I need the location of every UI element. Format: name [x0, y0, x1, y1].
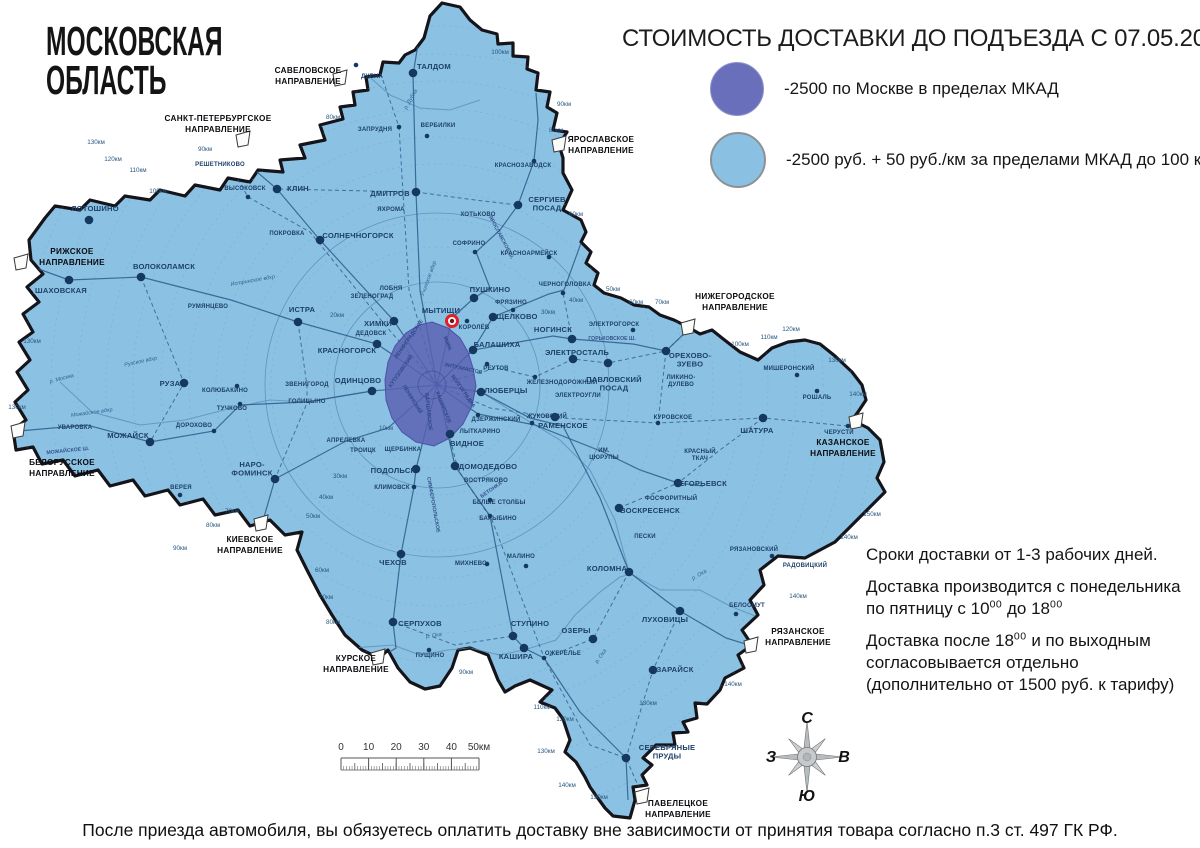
- city-label: ТКАЧ: [692, 456, 708, 462]
- city-dot: [561, 291, 566, 296]
- city-label: РАДОВИЦКИЙ: [783, 561, 827, 569]
- km-marker: 130км: [23, 338, 41, 345]
- sup-hours: 00: [1050, 599, 1063, 611]
- km-marker: 70км: [655, 299, 669, 306]
- scale-bar-label: 40: [446, 742, 458, 753]
- city-label: МОЖАЙСК: [107, 431, 149, 440]
- direction-label: НАПРАВЛЕНИЕ: [765, 638, 831, 647]
- city-label: ОДИНЦОВО: [335, 376, 381, 385]
- city-label: РУЗА: [160, 379, 181, 388]
- city-label: ПОСАД: [533, 204, 562, 213]
- city-dot: [446, 430, 455, 439]
- direction-label: РИЖСКОЕ: [50, 247, 94, 256]
- city-label: БЕЛЫЕ СТОЛБЫ: [472, 500, 525, 506]
- km-marker: 140км: [840, 534, 858, 541]
- direction-flag-icon: [14, 254, 28, 270]
- city-label: ТРОИЦК: [350, 448, 376, 454]
- city-label: ИСТРА: [289, 305, 316, 314]
- city-dot: [530, 421, 535, 426]
- legend-label-oblast: -2500 руб. + 50 руб./км за пределами МКА…: [786, 150, 1200, 170]
- city-label: ХИМКИ: [364, 319, 392, 328]
- city-dot: [631, 328, 636, 333]
- km-marker: 70км: [319, 594, 333, 601]
- city-label: ПРУДЫ: [653, 752, 682, 761]
- city-label: ОЖЕРЕЛЬЕ: [545, 651, 581, 657]
- direction-label: НАПРАВЛЕНИЕ: [275, 77, 341, 86]
- city-label: ДМИТРОВ: [370, 189, 410, 198]
- city-label: ЗЕЛЕНОГРАД: [351, 294, 394, 300]
- legend-label-mkad: -2500 по Москве в пределах МКАД: [784, 79, 1059, 99]
- delivery-terms: Сроки доставки от 1-3 рабочих дней.: [866, 544, 1200, 566]
- km-marker: 80км: [326, 114, 340, 121]
- direction-label: КАЗАНСКОЕ: [816, 438, 870, 447]
- city-label: ДОРОХОВО: [176, 423, 212, 429]
- city-label: ЛЮБЕРЦЫ: [484, 386, 527, 395]
- km-marker: 130км: [537, 748, 555, 755]
- city-label: ОЗЕРЫ: [561, 626, 590, 635]
- city-label: КЛИМОВСК: [374, 485, 410, 491]
- direction-label: САНКТ-ПЕТЕРБУРГСКОЕ: [165, 114, 272, 123]
- scale-bar-label: 10: [363, 742, 375, 753]
- direction-label: НАПРАВЛЕНИЕ: [810, 449, 876, 458]
- city-label: ДУБНА: [361, 74, 384, 80]
- city-label: ЛОТОШИНО: [71, 204, 119, 213]
- city-label: НОГИНСК: [534, 325, 572, 334]
- city-dot: [178, 493, 183, 498]
- direction-label: НАПРАВЛЕНИЕ: [29, 469, 95, 478]
- city-label: КРАСНОАРМЕЙСК: [501, 249, 558, 257]
- city-dot: [389, 618, 398, 627]
- city-label: ПОСАД: [600, 384, 629, 393]
- compass-east-label: В: [838, 749, 850, 766]
- km-marker: 140км: [849, 391, 867, 398]
- city-label: КОРОЛЁВ: [459, 324, 490, 331]
- delivery-after-hours: Доставка после 1800 и по выходным соглас…: [866, 630, 1200, 696]
- compass-south-label: Ю: [799, 788, 816, 805]
- direction-label: НАПРАВЛЕНИЕ: [323, 665, 389, 674]
- city-dot: [511, 308, 516, 313]
- city-label: КАШИРА: [499, 652, 534, 661]
- km-marker: 80км: [206, 522, 220, 529]
- city-label: ЧЕРУСТИ: [824, 430, 853, 436]
- city-label: ДЕДОВСК: [356, 331, 387, 337]
- city-label: ВЫСОКОВСК: [224, 186, 265, 192]
- city-label: ЭЛЕКТРОСТАЛЬ: [545, 348, 609, 357]
- disclaimer-text: После приезда автомобиля, вы обязуетесь …: [0, 820, 1200, 841]
- city-label: ЗУЕВО: [677, 360, 703, 369]
- mkad-zone-circle-icon: [710, 62, 764, 116]
- city-label: ДОМОДЕДОВО: [459, 462, 517, 471]
- city-label: ФОСФОРИТНЫЙ: [645, 494, 698, 502]
- km-marker: 30км: [333, 473, 347, 480]
- km-marker: 50км: [606, 286, 620, 293]
- city-dot: [509, 632, 518, 641]
- city-label: СЕРПУХОВ: [398, 619, 442, 628]
- city-dot: [273, 185, 282, 194]
- city-dot: [846, 424, 851, 429]
- km-marker: 40км: [569, 297, 583, 304]
- moscow-oblast-map: ГОРЬКОВСКОЕ Ш.МОЖАЙСКОЕ Ш.БЕТОНКАЯРОСЛАВ…: [0, 0, 1200, 848]
- km-marker: 150км: [863, 511, 881, 518]
- city-label: ВОСТРЯКОВО: [464, 478, 508, 484]
- km-marker: 120км: [556, 716, 574, 723]
- city-dot: [354, 63, 359, 68]
- road-name-label: ГОРЬКОВСКОЕ Ш.: [588, 336, 636, 342]
- city-label: БЕЛООМУТ: [729, 603, 765, 609]
- city-label: БАРЫБИНО: [479, 516, 517, 522]
- sup-hours: 00: [1014, 631, 1027, 643]
- city-dot: [568, 335, 577, 344]
- location-marker-center: [450, 319, 454, 323]
- city-label: БАЛАШИХА: [474, 340, 521, 349]
- km-marker: 10км: [379, 425, 393, 432]
- compass-rose-icon: СВЮЗ: [766, 710, 850, 805]
- km-marker: 60км: [315, 567, 329, 574]
- city-label: ВОСКРЕСЕНСК: [620, 506, 680, 515]
- km-marker: 110км: [760, 334, 777, 341]
- city-label: РУМЯНЦЕВО: [188, 304, 228, 310]
- city-dot: [397, 125, 402, 130]
- legend-row-oblast: -2500 руб. + 50 руб./км за пределами МКА…: [710, 132, 1200, 188]
- city-label: ЛУХОВИЦЫ: [642, 615, 688, 624]
- city-label: КРАСНОГОРСК: [318, 346, 377, 355]
- city-label: ЛИКИНО-: [667, 375, 696, 381]
- city-label: СОЛНЕЧНОГОРСК: [322, 231, 393, 240]
- city-dot: [368, 387, 377, 396]
- direction-label: НАПРАВЛЕНИЕ: [568, 146, 634, 155]
- km-marker: 100км: [149, 188, 167, 195]
- city-label: РЕУТОВ: [483, 366, 509, 372]
- scale-bar-label: 0: [338, 742, 344, 753]
- city-dot: [473, 250, 478, 255]
- direction-label: КИЕВСКОЕ: [226, 535, 273, 544]
- direction-label: РЯЗАНСКОЕ: [771, 627, 825, 636]
- city-label: МИХНЕВО: [455, 561, 487, 567]
- city-dot: [212, 429, 217, 434]
- city-label: РЕШЕТНИКОВО: [195, 162, 245, 168]
- direction-label: САВЕЛОВСКОЕ: [275, 66, 342, 75]
- km-marker: 150км: [590, 794, 608, 801]
- city-label: ТУЧКОВО: [217, 406, 247, 412]
- city-dot: [520, 644, 529, 653]
- km-marker: 80км: [549, 127, 563, 134]
- scale-bar: 01020304050км: [338, 742, 490, 770]
- direction-label: НАПРАВЛЕНИЕ: [702, 303, 768, 312]
- city-label: ДЗЕРЖИНСКИЙ: [472, 415, 521, 423]
- city-label: ЯХРОМА: [377, 207, 405, 213]
- city-dot: [622, 754, 631, 763]
- city-dot: [604, 359, 613, 368]
- km-marker: 130км: [87, 139, 105, 146]
- city-label: ШАХОВСКАЯ: [35, 286, 87, 295]
- km-marker: 130км: [8, 404, 26, 411]
- city-label: ПУЩИНО: [416, 653, 445, 659]
- city-dot: [514, 201, 523, 210]
- km-marker: 140км: [558, 782, 576, 789]
- km-marker: 90км: [173, 545, 187, 552]
- city-label: ШАТУРА: [740, 426, 773, 435]
- direction-label: ПАВЕЛЕЦКОЕ: [648, 799, 708, 808]
- city-label: КОЛОМНА: [587, 564, 628, 573]
- city-label: ПОКРОВКА: [269, 231, 305, 237]
- map-title-line2: ОБЛАСТЬ: [46, 61, 223, 100]
- city-dot: [412, 188, 421, 197]
- km-marker: 90км: [459, 669, 473, 676]
- direction-label: НАПРАВЛЕНИЕ: [185, 125, 251, 134]
- oblast-zone-circle-icon: [710, 132, 766, 188]
- city-dot: [425, 134, 430, 139]
- km-marker: 130км: [828, 357, 846, 364]
- city-label: КЛИН: [287, 184, 309, 193]
- city-dot: [734, 612, 739, 617]
- city-dot: [427, 648, 432, 653]
- city-label: ЦЮРУПЫ: [589, 455, 619, 461]
- city-dot: [397, 550, 406, 559]
- city-label: ЭЛЕКТРОГОРСК: [589, 322, 640, 328]
- km-marker: 40км: [319, 494, 333, 501]
- pricing-title: СТОИМОСТЬ ДОСТАВКИ ДО ПОДЪЕЗДА С 07.05.2…: [622, 25, 1200, 53]
- city-label: ГОЛИЦЫНО: [288, 399, 325, 405]
- city-label: МИШЕРОНСКИЙ: [763, 364, 814, 372]
- city-dot: [815, 389, 820, 394]
- city-label: ЖЕЛЕЗНОДОРОЖНЫЙ: [526, 378, 598, 386]
- legend-row-mkad: -2500 по Москве в пределах МКАД: [710, 62, 1059, 116]
- city-label: МАЛИНО: [507, 554, 535, 560]
- direction-label: НАПРАВЛЕНИЕ: [645, 810, 711, 819]
- city-label: ВОЛОКОЛАМСК: [133, 262, 195, 271]
- compass-north-label: С: [801, 710, 813, 727]
- city-dot: [246, 195, 251, 200]
- city-label: ЗАПРУДНЯ: [358, 127, 392, 133]
- km-marker: 110км: [129, 167, 146, 174]
- delivery-info: Сроки доставки от 1-3 рабочих дней. Дост…: [866, 544, 1200, 707]
- city-dot: [589, 635, 598, 644]
- city-dot: [412, 485, 417, 490]
- km-marker: 120км: [782, 326, 800, 333]
- map-title: МОСКОВСКАЯ ОБЛАСТЬ: [46, 22, 223, 100]
- direction-flag-icon: [635, 788, 649, 804]
- city-dot: [65, 276, 74, 285]
- km-marker: 130км: [639, 700, 657, 707]
- city-dot: [759, 414, 768, 423]
- city-label: ЖУКОВСКИЙ: [526, 412, 567, 420]
- direction-label: ЯРОСЛАВСКОЕ: [568, 135, 635, 144]
- km-marker: 110км: [533, 704, 550, 711]
- city-dot: [137, 273, 146, 282]
- km-marker: 90км: [557, 101, 571, 108]
- city-label: ЛЫТКАРИНО: [460, 429, 501, 435]
- sup-hours: 00: [990, 599, 1003, 611]
- city-label: ДУЛЕВО: [668, 382, 694, 388]
- city-dot: [656, 421, 661, 426]
- city-dot: [465, 319, 470, 324]
- km-marker: 60км: [629, 299, 643, 306]
- direction-label: НИЖЕГОРОДСКОЕ: [695, 292, 775, 301]
- city-label: РЯЗАНОВСКИЙ: [730, 545, 778, 553]
- km-marker: 140км: [724, 681, 742, 688]
- city-label: РАМЕНСКОЕ: [538, 421, 588, 430]
- map-title-line1: МОСКОВСКАЯ: [46, 22, 223, 61]
- scale-bar-label: 30: [418, 742, 430, 753]
- km-marker: 50км: [306, 513, 320, 520]
- city-label: ЗВЕНИГОРОД: [285, 382, 329, 388]
- city-dot: [524, 564, 529, 569]
- km-marker: 140км: [789, 593, 807, 600]
- city-label: ЧЕХОВ: [379, 558, 407, 567]
- scale-bar-label: 20: [391, 742, 403, 753]
- direction-flag-icon: [11, 422, 25, 438]
- city-label: СОФРИНО: [453, 241, 486, 247]
- city-label: ЛОБНЯ: [380, 286, 403, 292]
- city-label: КРАСНОЗАВОДСК: [495, 163, 552, 169]
- city-label: МЫТИЩИ: [422, 306, 460, 315]
- city-label: ПОДОЛЬСК: [371, 466, 416, 475]
- city-label: УВАРОВКА: [58, 425, 93, 431]
- city-label: ЩЕЛКОВО: [496, 312, 537, 321]
- km-marker: 60км: [569, 211, 583, 218]
- city-label: ФОМИНСК: [231, 469, 272, 478]
- direction-flag-icon: [681, 319, 695, 335]
- direction-label: БЕЛОРУССКОЕ: [29, 458, 95, 467]
- city-label: СТУПИНО: [511, 619, 549, 628]
- city-dot: [676, 607, 685, 616]
- direction-label: КУРСКОЕ: [336, 654, 377, 663]
- km-marker: 100км: [731, 341, 749, 348]
- km-marker: 90км: [198, 146, 212, 153]
- km-marker: 30км: [541, 309, 555, 316]
- city-label: ЭЛЕКТРОУГЛИ: [555, 393, 601, 399]
- city-dot: [770, 554, 775, 559]
- city-dot: [470, 294, 479, 303]
- scale-bar-label: 50км: [468, 742, 490, 753]
- city-dot: [533, 375, 538, 380]
- city-label: ВЕРБИЛКИ: [421, 123, 456, 129]
- city-label: АПРЕЛЕВКА: [327, 438, 366, 444]
- km-marker: 100км: [491, 49, 509, 56]
- delivery-map-infographic: ГОРЬКОВСКОЕ Ш.МОЖАЙСКОЕ Ш.БЕТОНКАЯРОСЛАВ…: [0, 0, 1200, 848]
- km-marker: 80км: [326, 619, 340, 626]
- city-dot: [180, 379, 189, 388]
- city-dot: [795, 373, 800, 378]
- km-marker: 20км: [330, 312, 344, 319]
- city-label: ТАЛДОМ: [417, 62, 451, 71]
- city-label: ЕГОРЬЕВСК: [679, 479, 727, 488]
- city-label: ВИДНОЕ: [450, 439, 484, 448]
- city-label: ЗАРАЙСК: [656, 665, 693, 674]
- city-label: ИМ.: [598, 448, 610, 454]
- city-label: КРАСНЫЙ: [684, 447, 716, 455]
- city-label: КУРОВСКОЕ: [654, 415, 693, 421]
- compass-west-label: З: [766, 749, 776, 766]
- city-dot: [294, 318, 303, 327]
- direction-label: НАПРАВЛЕНИЕ: [217, 546, 283, 555]
- city-label: ХОТЬКОВО: [460, 212, 495, 218]
- city-label: КОЛЮБАКИНО: [202, 388, 248, 394]
- direction-label: НАПРАВЛЕНИЕ: [39, 258, 105, 267]
- delivery-schedule: Доставка производится с понедельника по …: [866, 576, 1200, 620]
- km-marker: 70км: [225, 508, 239, 515]
- city-label: РОШАЛЬ: [803, 395, 832, 401]
- city-label: ВЕРЕЯ: [170, 485, 192, 491]
- city-dot: [409, 69, 418, 78]
- city-label: ПЕСКИ: [634, 534, 656, 540]
- city-label: ПУШКИНО: [470, 285, 511, 294]
- km-marker: 120км: [104, 156, 122, 163]
- city-dot: [85, 216, 94, 225]
- city-label: ЩЕРБИНКА: [385, 447, 422, 453]
- city-label: ФРЯЗИНО: [495, 300, 527, 306]
- city-label: ЧЕРНОГОЛОВКА: [539, 282, 592, 288]
